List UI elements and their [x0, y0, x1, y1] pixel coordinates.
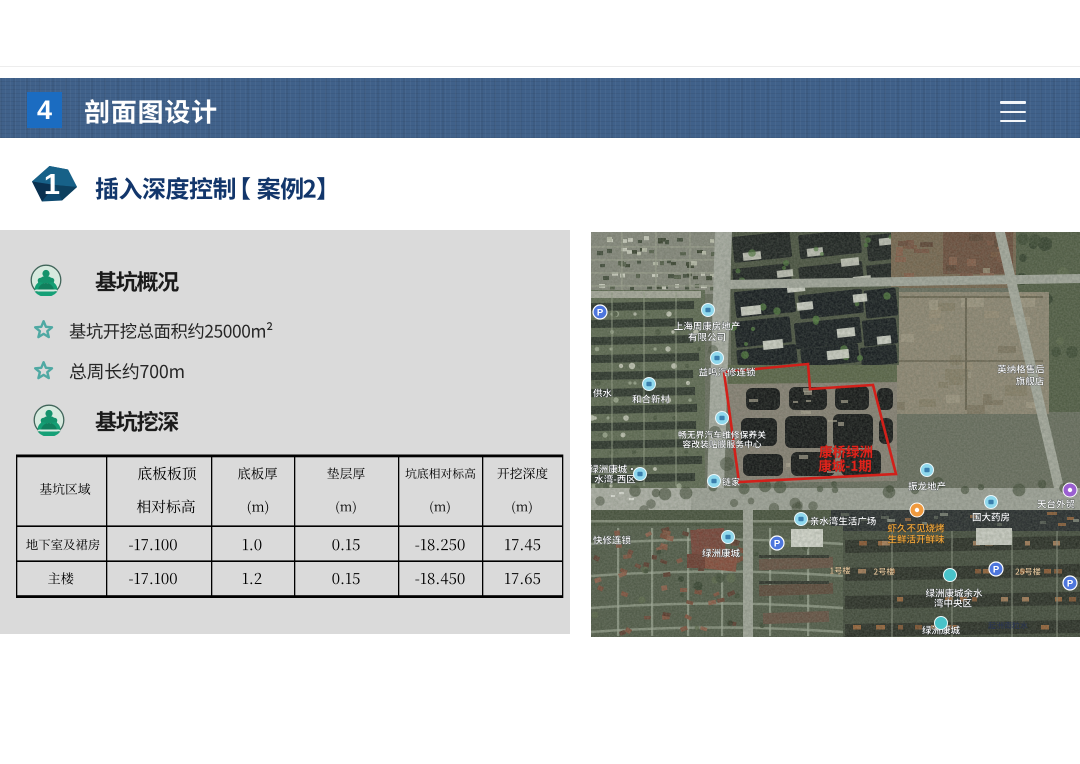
svg-text:P: P	[993, 564, 1000, 575]
svg-text:P: P	[774, 538, 781, 549]
svg-text:P: P	[1067, 578, 1074, 589]
svg-text:P: P	[597, 307, 604, 318]
